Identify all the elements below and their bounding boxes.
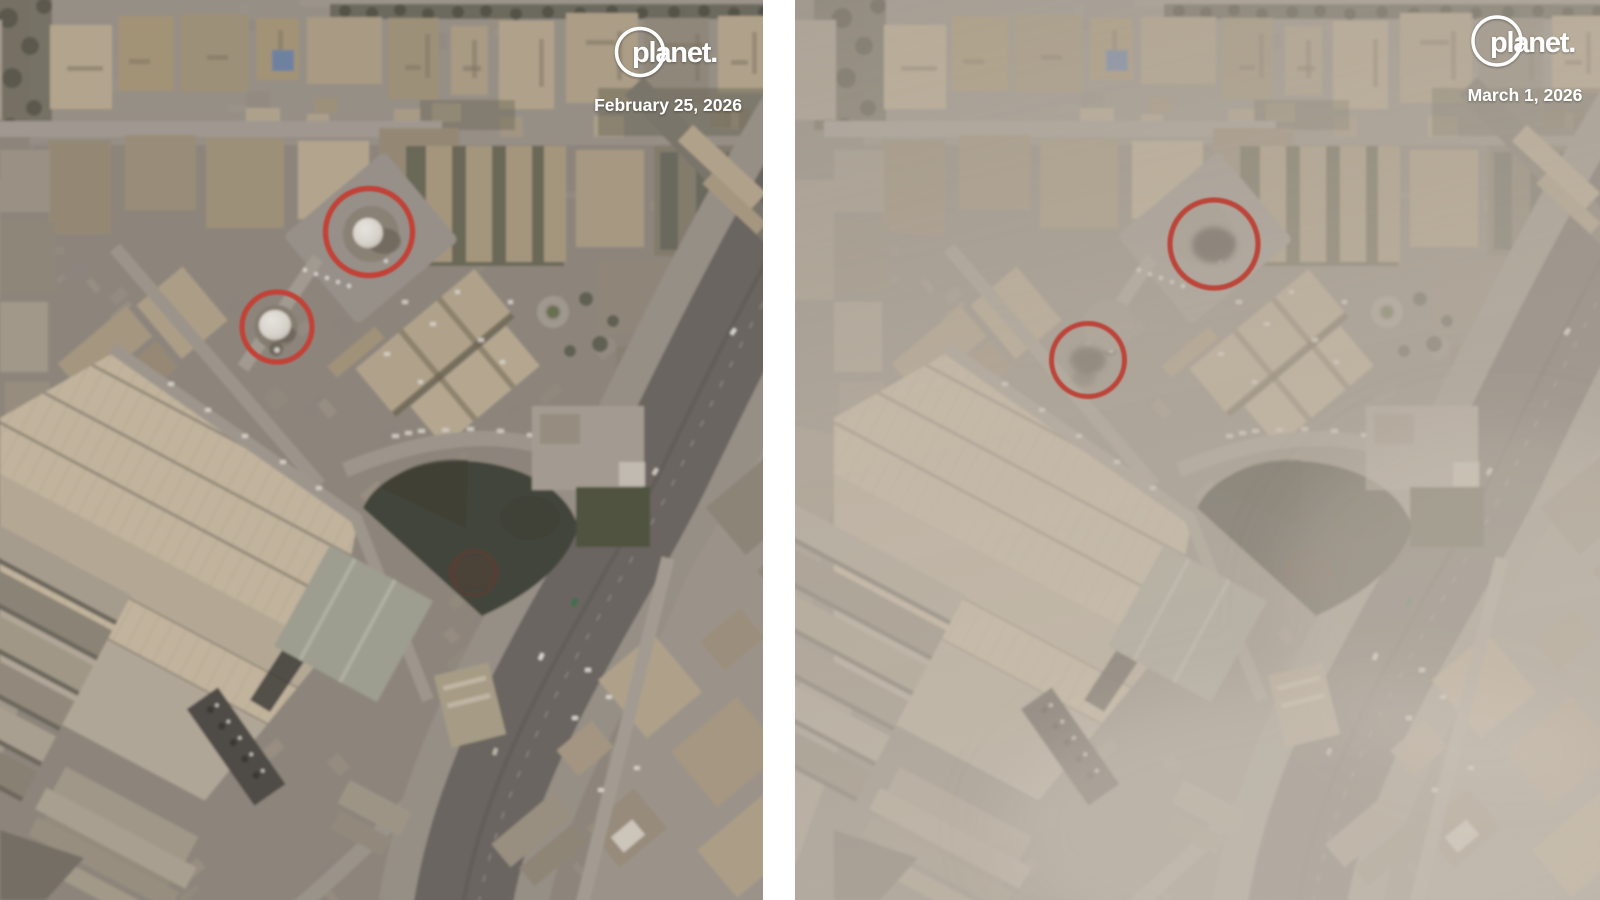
svg-text:February 25, 2026: February 25, 2026 — [594, 95, 742, 115]
svg-text:planet.: planet. — [1490, 27, 1575, 59]
svg-text:planet.: planet. — [632, 37, 717, 69]
svg-text:March 1, 2026: March 1, 2026 — [1468, 85, 1583, 105]
